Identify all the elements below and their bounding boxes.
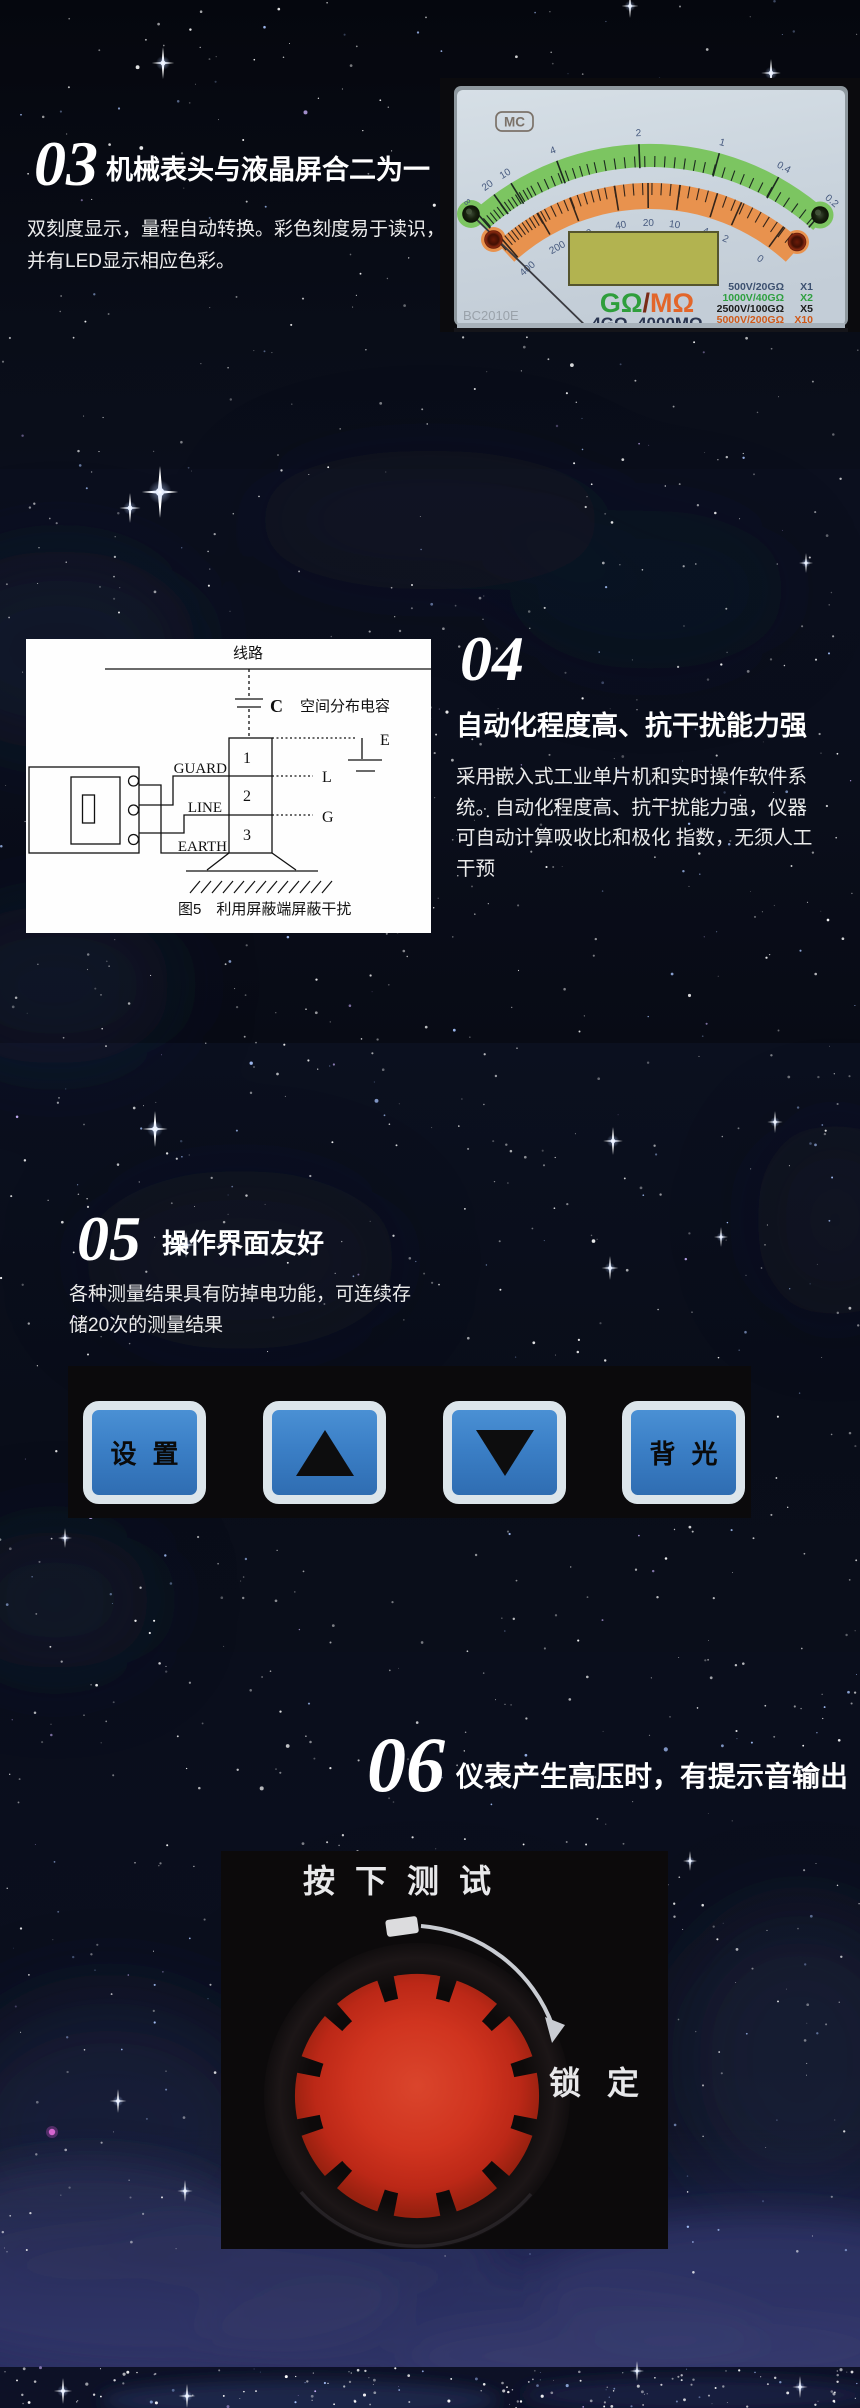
svg-text:20: 20: [643, 218, 655, 229]
svg-text:2: 2: [635, 128, 641, 139]
svg-text:40: 40: [614, 219, 627, 232]
svg-text:GUARD: GUARD: [174, 761, 228, 777]
svg-text:E: E: [380, 732, 390, 749]
svg-text:GΩ/MΩ: GΩ/MΩ: [600, 288, 694, 318]
svg-text:MC: MC: [504, 115, 525, 130]
svg-text:按下测试: 按下测试: [303, 1863, 511, 1899]
svg-text:L: L: [322, 769, 332, 786]
svg-text:空间分布电容: 空间分布电容: [300, 698, 390, 715]
svg-text:1: 1: [243, 750, 251, 767]
svg-text:10: 10: [668, 219, 681, 231]
svg-text:BC2010E: BC2010E: [463, 308, 519, 323]
svg-text:锁定: 锁定: [549, 2065, 665, 2101]
svg-text:EARTH: EARTH: [178, 839, 227, 855]
svg-text:2: 2: [243, 788, 251, 805]
svg-text:LINE: LINE: [188, 800, 222, 816]
svg-text:C: C: [270, 696, 283, 716]
svg-text:线路: 线路: [233, 645, 263, 662]
svg-text:3: 3: [243, 827, 251, 844]
svg-text:G: G: [322, 809, 334, 826]
svg-text:图5 利用屏蔽端屏蔽干扰: 图5 利用屏蔽端屏蔽干扰: [178, 901, 351, 918]
